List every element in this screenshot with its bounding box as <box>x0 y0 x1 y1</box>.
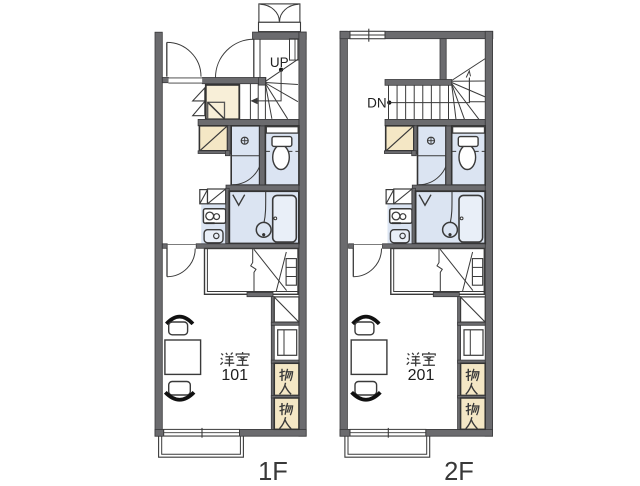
svg-text:1F: 1F <box>258 458 288 486</box>
svg-text:DN: DN <box>367 96 387 111</box>
svg-text:101: 101 <box>221 367 248 384</box>
svg-text:201: 201 <box>408 367 435 384</box>
svg-text:2F: 2F <box>444 458 474 486</box>
